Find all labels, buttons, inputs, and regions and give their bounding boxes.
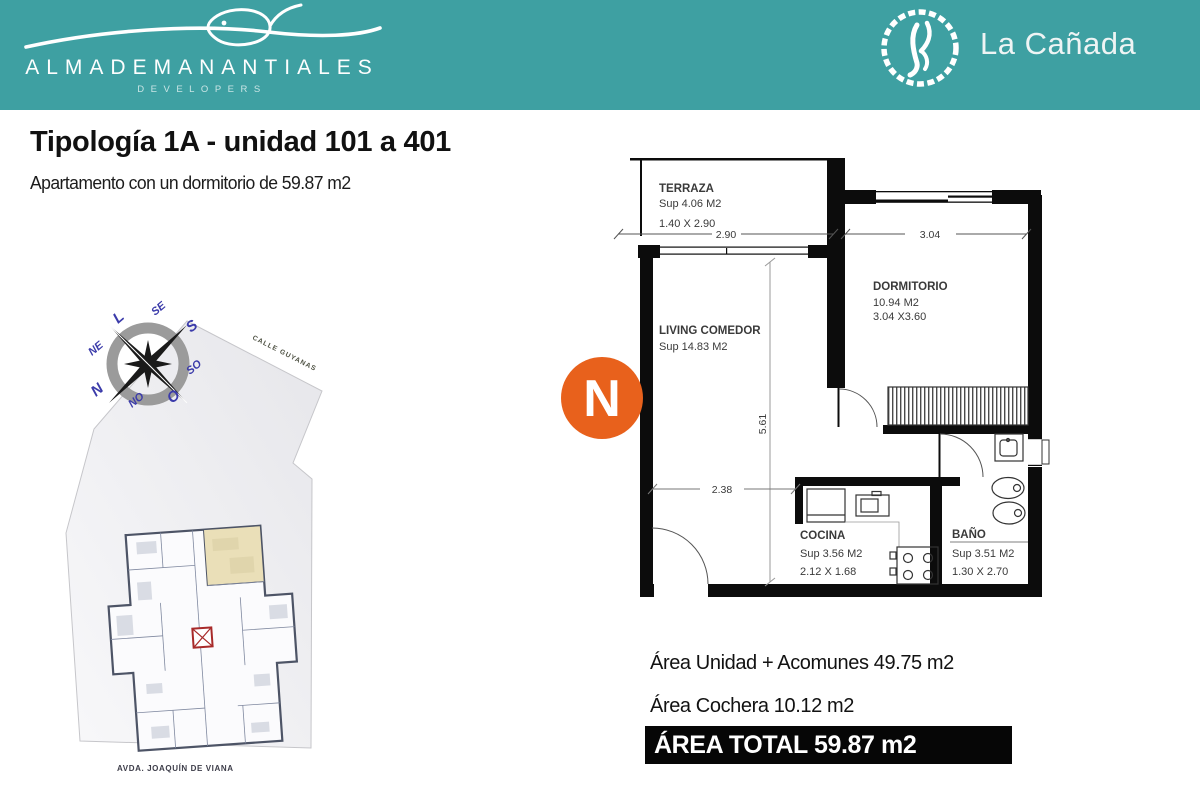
dimension-labels: 2.90 3.04 5.61 2.38 [712, 229, 941, 496]
street-label-bottom: AVDA. JOAQUÍN DE VIANA [117, 764, 234, 773]
room-bano-name: BAÑO [952, 528, 986, 541]
dim-living-height: 5.61 [757, 414, 769, 435]
compass-label-l: L [110, 308, 128, 327]
drawing-canvas: CALLE GUYANAS AVDA. JOAQUÍN DE VIANA [0, 0, 1200, 792]
room-terraza-dims: 1.40 X 2.90 [659, 218, 715, 230]
compass-label-ne: NE [86, 339, 106, 358]
room-bano-sup: Sup 3.51 M2 [952, 548, 1014, 560]
room-cocina-sup: Sup 3.56 M2 [800, 548, 862, 560]
compass-label-n: N [88, 379, 108, 400]
room-terraza-name: TERRAZA [659, 183, 714, 195]
highlighted-unit [203, 526, 264, 586]
room-bano-dims: 1.30 X 2.70 [952, 566, 1008, 578]
area-garage-line: Área Cochera 10.12 m2 [650, 695, 854, 718]
wall-niche [1028, 438, 1049, 466]
room-dormitorio-sup: 10.94 M2 [873, 297, 919, 309]
room-living-name: LIVING COMEDOR [659, 325, 761, 337]
dim-living-width: 2.38 [712, 484, 733, 496]
toilet-icon [992, 478, 1024, 499]
bathroom-fixtures [950, 434, 1028, 542]
bath-sink-icon [995, 434, 1023, 461]
room-dormitorio-dims: 3.04 X3.60 [873, 311, 926, 323]
room-living-sup: Sup 14.83 M2 [659, 341, 728, 353]
room-dormitorio-name: DORMITORIO [873, 281, 948, 293]
fridge-icon [807, 489, 845, 522]
area-unit-line: Área Unidad + Acomunes 49.75 m2 [650, 652, 954, 675]
dim-terraza-width: 2.90 [716, 229, 737, 241]
site-plan: CALLE GUYANAS AVDA. JOAQUÍN DE VIANA [66, 299, 322, 773]
bidet-icon [993, 502, 1025, 524]
room-terraza-sup: Sup 4.06 M2 [659, 198, 721, 210]
north-badge-letter: N [583, 370, 621, 428]
north-badge: N [561, 357, 643, 439]
area-total-bar: ÁREA TOTAL 59.87 m2 [645, 726, 1012, 764]
room-cocina-name: COCINA [800, 530, 845, 542]
compass-label-se: SE [149, 299, 168, 318]
room-cocina-dims: 2.12 X 1.68 [800, 566, 856, 578]
dim-dormitorio-width: 3.04 [920, 229, 941, 241]
floor-plan: TERRAZA Sup 4.06 M2 1.40 X 2.90 DORMITOR… [561, 158, 1049, 597]
wardrobe [888, 387, 1028, 425]
